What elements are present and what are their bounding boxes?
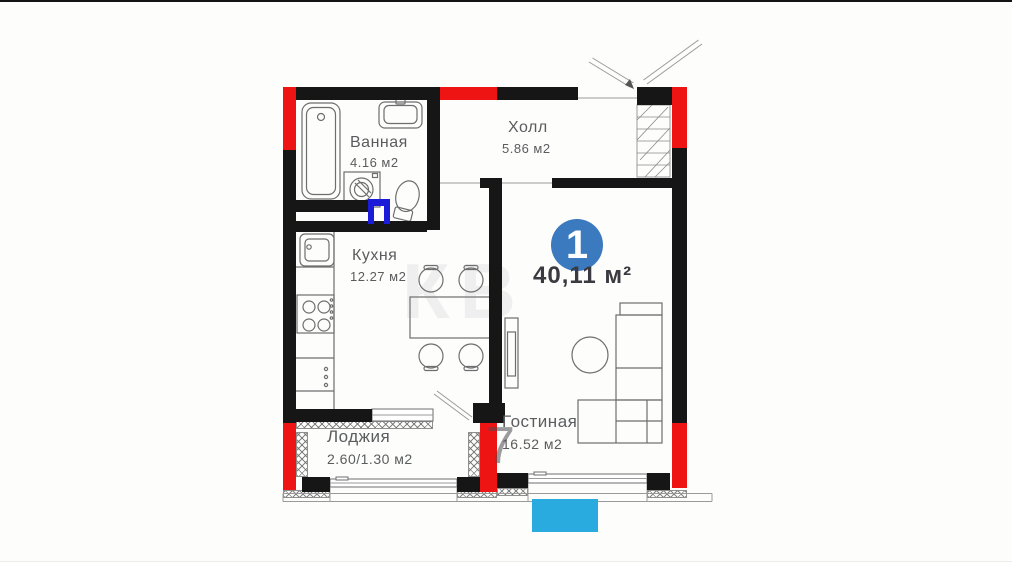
room-area: 2.60/1.30 м2 [327, 452, 413, 466]
cabinet-dots [324, 367, 327, 386]
toilet-icon [390, 178, 422, 222]
total-area-label: 40,11 м² [533, 262, 673, 290]
room-label-bathroom: Ванная 4.16 м2 [350, 135, 408, 169]
room-area: 5.86 м2 [502, 142, 551, 155]
floor-plan-canvas: КВ [0, 0, 1012, 563]
watermark-digit: 7 [486, 420, 515, 472]
kitchen-sink-icon [300, 234, 334, 266]
wardrobe-icon [637, 105, 670, 177]
top-edge-line [0, 0, 1012, 2]
entrance-door-swing [589, 40, 702, 89]
loggia-window [330, 477, 457, 487]
room-label-hall: Холл 5.86 м2 [508, 120, 551, 155]
cyan-logo-block [532, 499, 598, 532]
living-window [528, 472, 647, 483]
bathroom-door-frame [368, 199, 390, 224]
dining-table-icon [410, 297, 490, 338]
bathtub-icon [302, 103, 340, 199]
stove-icon [297, 295, 334, 333]
kitchen-loggia-window [372, 409, 433, 421]
bath-sink-icon [379, 99, 422, 128]
room-name: Ванная [350, 134, 408, 151]
room-name: Лоджия [327, 427, 390, 446]
room-area: 12.27 м2 [350, 270, 406, 283]
room-label-kitchen: Кухня 12.27 м2 [352, 248, 406, 283]
room-label-loggia: Лоджия 2.60/1.30 м2 [327, 428, 413, 466]
chair-icons [419, 266, 483, 371]
bottom-edge-line [0, 561, 1012, 562]
coffee-table-icon [572, 337, 608, 373]
plan-linework [0, 0, 1012, 563]
room-area: 4.16 м2 [350, 156, 408, 169]
room-name: Кухня [352, 247, 397, 264]
loggia-door-swing [434, 391, 472, 420]
room-name: Холл [508, 119, 548, 136]
tv-icon [505, 318, 518, 388]
